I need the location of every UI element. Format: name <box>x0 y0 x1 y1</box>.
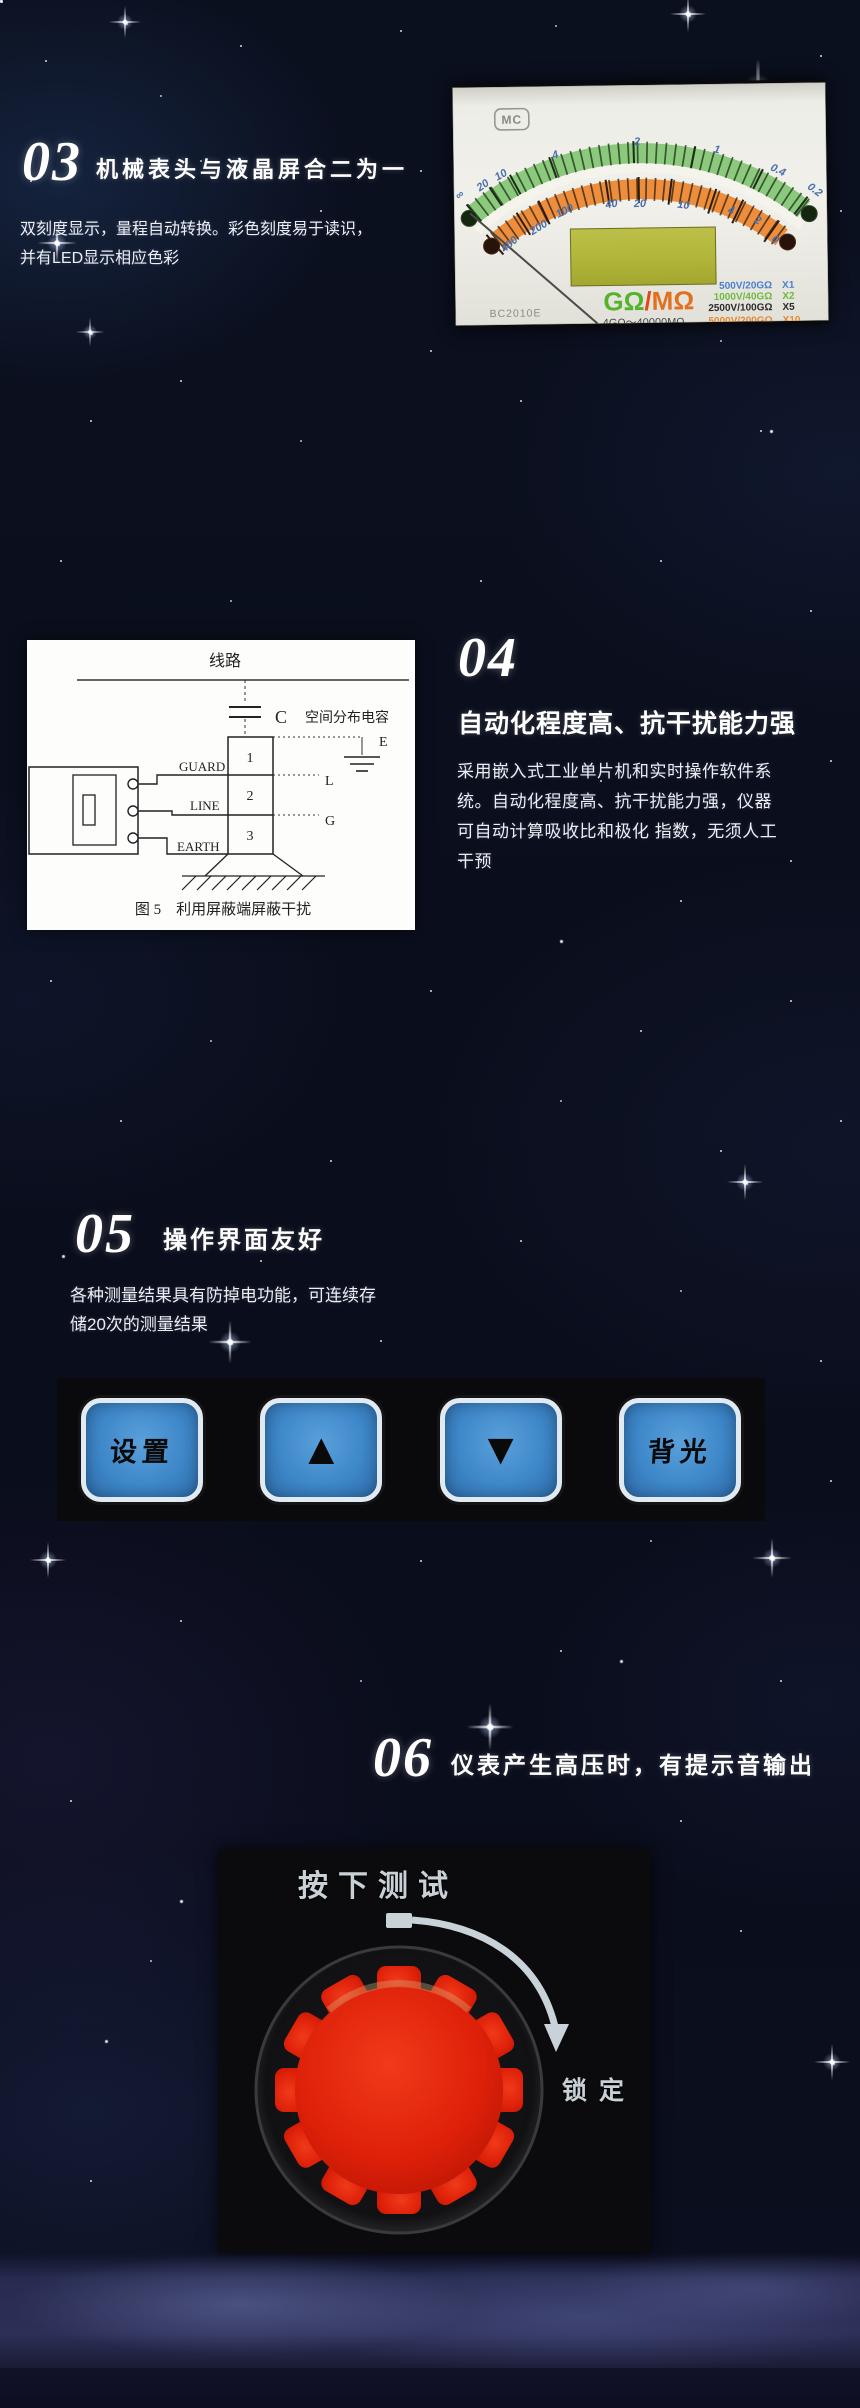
section-04-body: 采用嵌入式工业单片机和实时操作软件系 统。自动化程度高、抗干扰能力强，仪器 可自… <box>457 757 777 877</box>
section-06-title: 仪表产生高压时，有提示音输出 <box>451 1746 815 1782</box>
orange-scale-label: 20 <box>633 198 647 210</box>
meter-range-note: 4GΩ～40000MΩ <box>603 316 685 325</box>
range-mult: X2 <box>782 291 795 302</box>
green-scale-label: 2 <box>633 136 640 148</box>
stack-cell-label: 2 <box>247 789 254 804</box>
meter-unit-gohm: GΩ <box>603 286 644 317</box>
stack-cell-label: 3 <box>247 829 254 844</box>
rotate-arrow-head <box>544 2024 569 2052</box>
shield-wiring-diagram: 线路 C 空间分布电容 1 2 3 E L <box>27 640 415 930</box>
section-04-body-line: 可自动计算吸收比和极化 指数，无须人工 <box>457 817 777 847</box>
terminal-label-earth: EARTH <box>177 839 220 854</box>
meter-range-table: 500V/20GΩ X1 1000V/40GΩ X2 2500V/100GΩ X… <box>708 280 801 326</box>
range-label: 500V/20GΩ <box>719 280 772 292</box>
backlight-button: 背光 <box>619 1398 741 1502</box>
guard-wire <box>138 775 228 784</box>
instrument-slot <box>83 795 95 825</box>
meter-lcd <box>570 227 716 286</box>
ground-spread <box>273 854 303 876</box>
terminal <box>128 806 138 816</box>
meter-brand-text: MC <box>501 113 522 127</box>
section-05-body-line: 储20次的测量结果 <box>70 1310 376 1339</box>
section-04-body-line: 统。自动化程度高、抗干扰能力强，仪器 <box>457 787 777 817</box>
section-06-header: 06 仪表产生高压时，有提示音输出 <box>373 1736 815 1782</box>
diagram-svg: 线路 C 空间分布电容 1 2 3 E L <box>27 640 415 930</box>
earth-ground-symbol <box>344 757 380 771</box>
ground-spread <box>205 854 228 876</box>
meter-photo: MC <box>452 79 828 328</box>
keypad-photo: 设置 ▲ ▼ 背光 <box>57 1378 765 1521</box>
range-label: 1000V/40GΩ <box>714 291 773 303</box>
right-label-L: L <box>325 774 334 789</box>
diagram-cap-label: 空间分布电容 <box>305 709 389 726</box>
starfield-layer-colored <box>0 0 3 3</box>
diagram-cap-symbol: C <box>275 707 287 727</box>
meter-model: BC2010E <box>489 307 541 320</box>
up-arrow-icon: ▲ <box>300 1428 344 1472</box>
section-03-header: 03 机械表头与液晶屏合二为一 <box>22 140 408 186</box>
diagram-caption: 图 5 利用屏蔽端屏蔽干扰 <box>135 901 311 918</box>
terminal-label-guard: GUARD <box>179 759 225 774</box>
flare-star <box>752 1538 792 1578</box>
product-detail-page: 03 机械表头与液晶屏合二为一 双刻度显示，量程自动转换。彩色刻度易于读识， 并… <box>0 0 860 2408</box>
settings-button-label: 设置 <box>109 1430 176 1469</box>
section-04-body-line: 干预 <box>457 847 777 877</box>
nebula-cloud-band <box>0 2253 860 2368</box>
right-label-G: G <box>325 814 335 829</box>
section-04-title: 自动化程度高、抗干扰能力强 <box>458 704 796 740</box>
section-03-body: 双刻度显示，量程自动转换。彩色刻度易于读识， 并有LED显示相应色彩 <box>20 215 372 273</box>
section-05-body-line: 各种测量结果具有防掉电功能，可连续存 <box>70 1281 376 1310</box>
range-mult: X5 <box>782 302 795 313</box>
test-knob-photo: 按下测试 <box>218 1849 650 2253</box>
terminal <box>128 779 138 789</box>
range-mult: X1 <box>782 280 795 291</box>
meter-orange-end-dot <box>483 238 499 254</box>
section-05-header: 05 操作界面友好 <box>75 1212 325 1258</box>
terminal <box>128 833 138 843</box>
stack-cell-label: 1 <box>247 751 254 766</box>
section-04-header: 04 自动化程度高、抗干扰能力强 <box>458 636 796 740</box>
down-arrow-button: ▼ <box>440 1398 562 1502</box>
section-06-number: 06 <box>373 1736 433 1782</box>
section-04-number: 04 <box>458 636 518 682</box>
section-05-body: 各种测量结果具有防掉电功能，可连续存 储20次的测量结果 <box>70 1281 376 1339</box>
bottom-starfield-strip <box>0 2368 860 2408</box>
backlight-button-label: 背光 <box>647 1430 714 1469</box>
section-04-body-line: 采用嵌入式工业单片机和实时操作软件系 <box>457 757 777 787</box>
down-arrow-icon: ▼ <box>479 1428 523 1472</box>
orange-scale-label: 10 <box>677 199 692 213</box>
range-mult: X10 <box>783 315 801 326</box>
arrow-tail <box>386 1913 412 1928</box>
settings-button: 设置 <box>81 1398 203 1502</box>
section-03-title: 机械表头与液晶屏合二为一 <box>96 152 408 186</box>
flare-star <box>109 6 141 38</box>
meter-unit-mohm: MΩ <box>651 285 694 316</box>
meter-green-end-dot <box>801 206 817 222</box>
terminal-label-line: LINE <box>190 798 220 813</box>
flare-star <box>76 318 105 347</box>
section-05-number: 05 <box>75 1212 135 1258</box>
up-arrow-button: ▲ <box>260 1398 382 1502</box>
flare-star <box>670 0 706 32</box>
meter-units: GΩ/MΩ <box>603 285 694 316</box>
section-03-body-line: 并有LED显示相应色彩 <box>20 244 372 273</box>
meter-face: MC <box>452 82 828 325</box>
diagram-line-label: 线路 <box>209 652 241 670</box>
flare-star <box>30 1542 66 1578</box>
range-label: 5000V/200GΩ <box>708 315 772 325</box>
flare-star <box>814 2044 850 2080</box>
range-label: 2500V/100GΩ <box>708 302 772 314</box>
right-label-E: E <box>379 735 388 750</box>
meter-orange-end-dot <box>779 234 795 250</box>
lock-label: 锁定 <box>562 2071 636 2107</box>
section-03-body-line: 双刻度显示，量程自动转换。彩色刻度易于读识， <box>20 215 372 244</box>
flare-star <box>727 1164 763 1200</box>
knob-graphic <box>218 1849 650 2253</box>
section-03-number: 03 <box>22 140 82 186</box>
section-05-title: 操作界面友好 <box>163 1220 325 1258</box>
ground-hatch <box>182 876 316 890</box>
capacitor-symbol <box>229 707 261 717</box>
